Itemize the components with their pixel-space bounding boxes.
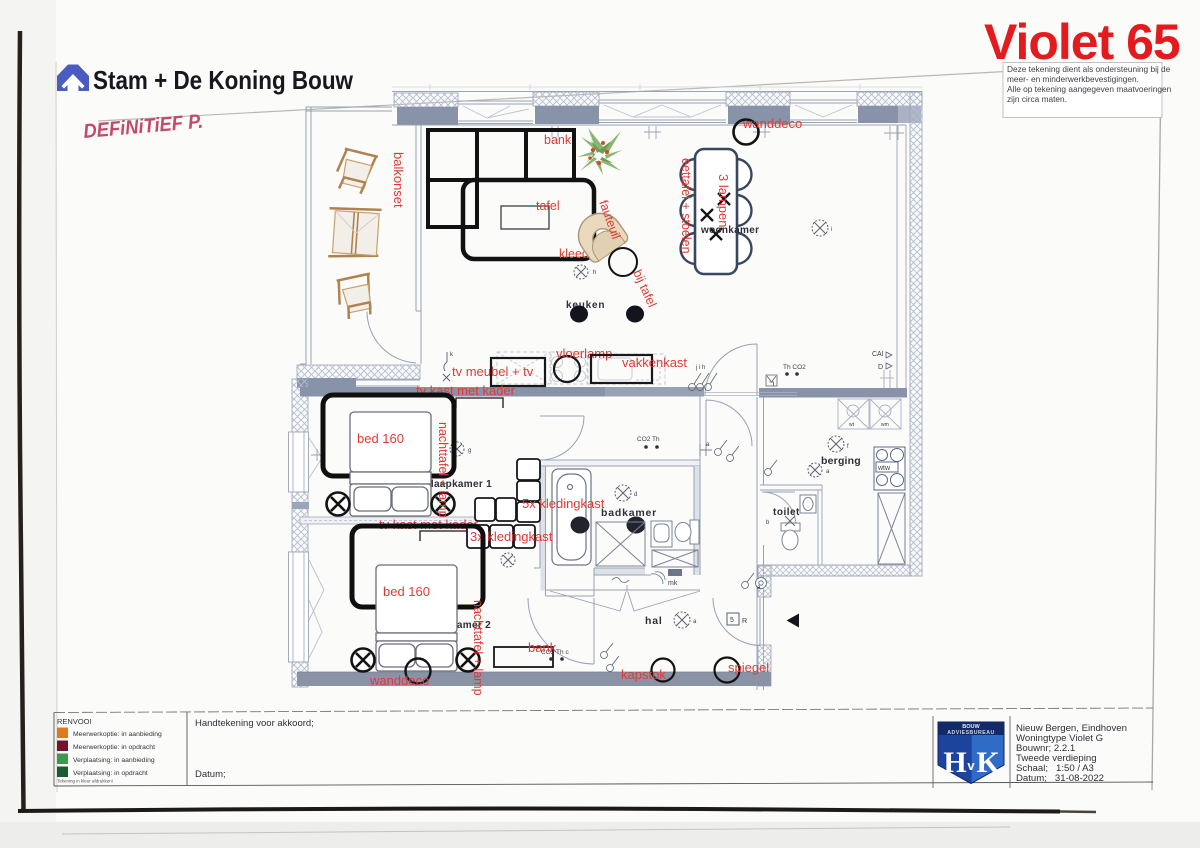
svg-text:g: g (468, 448, 471, 454)
svg-text:meer- en minderwerkbevestiging: meer- en minderwerkbevestigingen. (1007, 74, 1139, 84)
svg-text:K: K (976, 746, 1000, 779)
svg-text:j i h: j i h (695, 365, 705, 371)
svg-text:wanddeco: wanddeco (369, 673, 429, 688)
svg-text:bed 160: bed 160 (383, 584, 430, 599)
svg-text:Th CO2: Th CO2 (783, 364, 806, 371)
svg-text:Deze tekening dient als onders: Deze tekening dient als ondersteuning bi… (1007, 64, 1171, 74)
svg-text:mk: mk (668, 580, 678, 587)
svg-text:spiegel: spiegel (728, 660, 769, 675)
svg-text:Datum;: Datum; (195, 769, 226, 780)
svg-text:kapstok: kapstok (621, 667, 666, 682)
svg-text:h: h (593, 270, 596, 276)
svg-text:RENVOOI: RENVOOI (57, 717, 92, 726)
svg-text:Verplaatsing: in opdracht: Verplaatsing: in opdracht (73, 770, 148, 777)
svg-text:woonkamer: woonkamer (700, 225, 759, 236)
svg-text:vloerlamp: vloerlamp (556, 346, 612, 361)
svg-text:zijn circa maten.: zijn circa maten. (1007, 94, 1067, 104)
svg-text:H: H (943, 746, 966, 779)
svg-text:Verplaatsing: in aanbieding: Verplaatsing: in aanbieding (73, 757, 155, 764)
svg-text:d: d (634, 492, 637, 498)
svg-text:wm: wm (881, 422, 889, 428)
svg-text:nachttafel + lamp: nachttafel + lamp (471, 600, 485, 696)
svg-text:5x kledingkast: 5x kledingkast (522, 496, 605, 511)
svg-text:Meerwerkoptie: in opdracht: Meerwerkoptie: in opdracht (73, 744, 155, 751)
svg-text:v: v (967, 758, 975, 773)
svg-text:Handtekening voor akkoord;: Handtekening voor akkoord; (195, 718, 314, 729)
svg-text:tafel: tafel (536, 199, 560, 213)
svg-text:balkonset: balkonset (391, 152, 406, 208)
svg-text:5: 5 (730, 617, 734, 624)
svg-text:Stam + De Koning Bouw: Stam + De Koning Bouw (93, 65, 354, 95)
svg-text:wtw: wtw (877, 465, 891, 472)
svg-text:slaapkamer 1: slaapkamer 1 (425, 479, 492, 490)
svg-text:i: i (831, 227, 832, 233)
svg-text:hal: hal (645, 615, 663, 627)
svg-text:CO2 Th: CO2 Th (637, 436, 660, 443)
svg-text:D: D (878, 364, 883, 371)
svg-text:toilet: toilet (773, 507, 800, 518)
svg-text:bed 160: bed 160 (357, 431, 404, 446)
svg-text:CO2 Th c: CO2 Th c (541, 649, 569, 656)
svg-text:wanddeco: wanddeco (742, 116, 802, 131)
svg-text:eettafel + stoelen: eettafel + stoelen (679, 158, 693, 254)
svg-text:bank: bank (544, 133, 572, 147)
svg-text:Meerwerkoptie: in aanbieding: Meerwerkoptie: in aanbieding (73, 731, 162, 738)
svg-text:Alle op tekening aangegeven ma: Alle op tekening aangegeven maatvoeringe… (1007, 84, 1172, 94)
svg-text:badkamer: badkamer (601, 507, 657, 519)
svg-text:Datum; 31-08-2022: Datum; 31-08-2022 (1016, 773, 1104, 784)
svg-text:vakkenkast: vakkenkast (622, 355, 687, 370)
svg-text:Violet 65: Violet 65 (984, 14, 1180, 70)
svg-text:tv meubel + tv: tv meubel + tv (452, 364, 534, 379)
svg-text:berging: berging (821, 455, 861, 467)
svg-text:Tekening in kleur afdrukken!: Tekening in kleur afdrukken! (57, 779, 113, 784)
svg-text:wt: wt (849, 422, 855, 428)
svg-text:CAI: CAI (872, 351, 884, 358)
svg-text:R: R (742, 618, 747, 625)
svg-text:3 lampen: 3 lampen (716, 174, 731, 227)
svg-text:ADVIESBUREAU: ADVIESBUREAU (947, 730, 995, 736)
svg-text:nachttafel + lamp: nachttafel + lamp (436, 422, 450, 518)
